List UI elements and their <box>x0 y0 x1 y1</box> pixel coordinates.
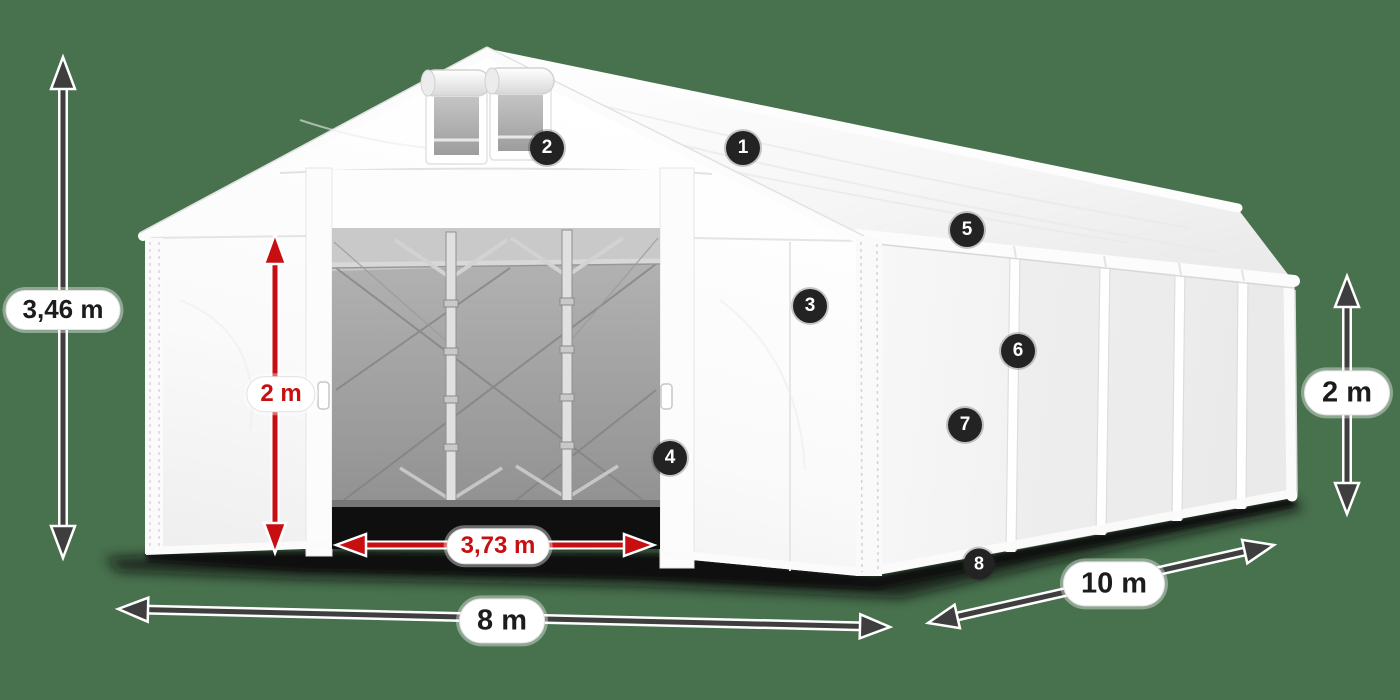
hotspot-badge-1[interactable]: 1 <box>726 131 760 165</box>
hotspot-badge-6[interactable]: 6 <box>1001 334 1035 368</box>
dim-door-width: 3,73 m <box>447 528 550 564</box>
dim-side-length: 10 m <box>1063 561 1165 606</box>
corner-band-left <box>145 238 163 554</box>
dim-side-length-label: 10 m <box>1081 567 1147 599</box>
window-pane <box>434 97 479 155</box>
door-interior <box>332 228 660 549</box>
dim-door-height: 2 m <box>246 376 315 412</box>
door-jamb-left <box>306 168 332 556</box>
dim-door-width-label: 3,73 m <box>461 532 536 559</box>
dim-front-width-label: 8 m <box>477 604 527 636</box>
tent-illustration <box>0 0 1400 700</box>
dim-side-height-label: 2 m <box>1322 376 1372 408</box>
side-seam <box>1011 252 1015 552</box>
dim-side-height: 2 m <box>1304 370 1390 415</box>
door-jamb-right <box>660 168 694 568</box>
door-handle-right <box>661 384 672 409</box>
side-seam <box>1177 269 1180 521</box>
side-seam <box>1241 276 1243 509</box>
hotspot-badge-3[interactable]: 3 <box>793 289 827 323</box>
side-seam <box>1101 262 1105 535</box>
tent-diagram: 3,46 m 2 m 3,73 m 8 m 10 m 2 m 1 2 3 4 5… <box>0 0 1400 700</box>
hotspot-badge-5[interactable]: 5 <box>950 213 984 247</box>
dim-door-height-label: 2 m <box>260 380 301 407</box>
hotspot-badge-8[interactable]: 8 <box>964 549 995 580</box>
hotspot-badge-4[interactable]: 4 <box>653 441 687 475</box>
door-handle-left <box>318 382 329 409</box>
dim-front-width: 8 m <box>459 598 545 643</box>
dim-total-height: 3,46 m <box>6 290 121 330</box>
hotspot-badge-2[interactable]: 2 <box>530 131 564 165</box>
hotspot-badge-7[interactable]: 7 <box>948 408 982 442</box>
door-header <box>306 170 694 232</box>
corner-post-back <box>1289 283 1292 496</box>
dim-total-height-label: 3,46 m <box>23 294 104 324</box>
